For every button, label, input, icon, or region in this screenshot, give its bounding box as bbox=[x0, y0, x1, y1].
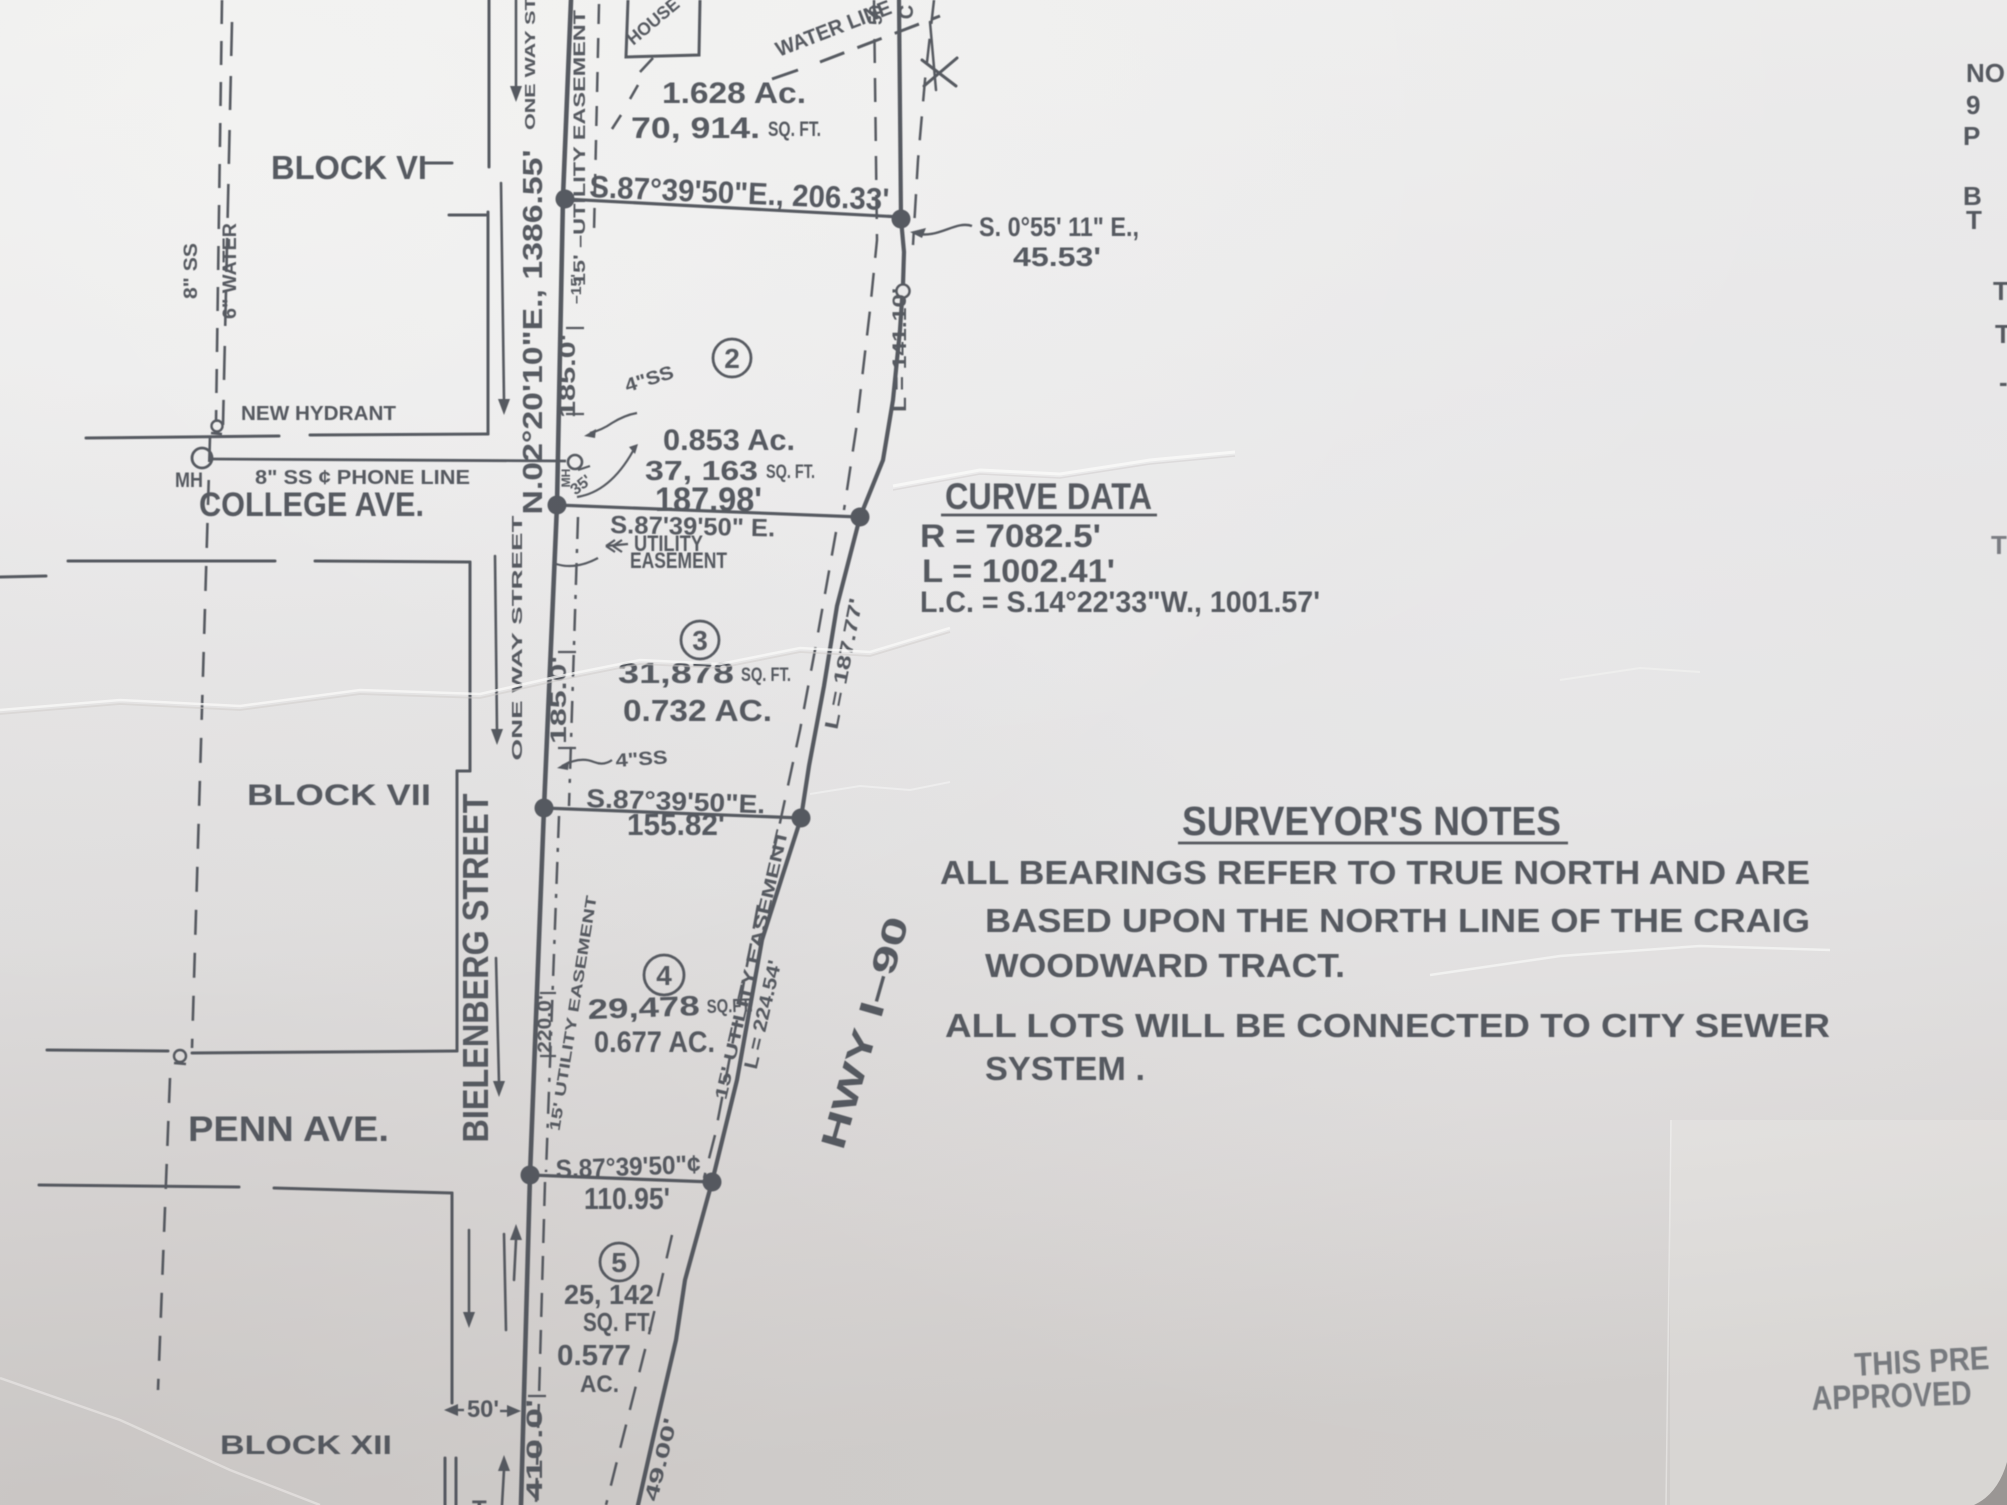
svg-text:–15': –15' bbox=[568, 274, 585, 304]
svg-text:9: 9 bbox=[1966, 90, 1980, 120]
svg-text:CURVE DATA: CURVE DATA bbox=[945, 476, 1152, 517]
svg-text:220.0': 220.0' bbox=[535, 995, 556, 1053]
svg-text:ONE WAY STREET: ONE WAY STREET bbox=[522, 0, 539, 130]
svg-text:70, 914.: 70, 914. bbox=[631, 112, 760, 145]
svg-text:NO: NO bbox=[1966, 58, 2005, 88]
svg-text:185.0': 185.0' bbox=[555, 334, 580, 418]
svg-text:ONE WAY STREET: ONE WAY STREET bbox=[509, 516, 526, 761]
svg-text:29,478: 29,478 bbox=[587, 990, 700, 1025]
svg-text:1.628 Ac.: 1.628 Ac. bbox=[662, 77, 806, 110]
svg-text:BLOCK VI: BLOCK VI bbox=[271, 149, 427, 186]
svg-text:WOODWARD TRACT.: WOODWARD TRACT. bbox=[985, 947, 1345, 984]
svg-text:SURVEYOR'S NOTES: SURVEYOR'S NOTES bbox=[1182, 798, 1561, 844]
svg-text:155.82': 155.82' bbox=[627, 807, 725, 842]
svg-text:PENN AVE.: PENN AVE. bbox=[188, 1110, 389, 1149]
svg-text:6" WATER: 6" WATER bbox=[220, 223, 241, 319]
svg-text:SQ. FT.: SQ. FT. bbox=[741, 665, 791, 686]
svg-text:NEW HYDRANT: NEW HYDRANT bbox=[241, 403, 396, 425]
svg-text:T: T bbox=[1993, 276, 2007, 306]
svg-text:COLLEGE AVE.: COLLEGE AVE. bbox=[199, 486, 424, 524]
svg-text:BLOCK VII: BLOCK VII bbox=[247, 779, 431, 812]
svg-text:S. 0°55' 11" E.,: S. 0°55' 11" E., bbox=[979, 212, 1139, 242]
svg-text:50: 50 bbox=[866, 5, 886, 25]
svg-text:25, 142: 25, 142 bbox=[564, 1279, 654, 1310]
svg-text:T: T bbox=[472, 1496, 487, 1505]
svg-text:T: T bbox=[1991, 530, 2007, 560]
svg-text:SQ. FT.: SQ. FT. bbox=[583, 1307, 653, 1337]
svg-text:T: T bbox=[1995, 319, 2007, 349]
svg-text:8" SS ¢ PHONE LINE: 8" SS ¢ PHONE LINE bbox=[255, 467, 470, 489]
svg-text:50': 50' bbox=[467, 1396, 499, 1423]
svg-text:BIELENBERG STREET: BIELENBERG STREET bbox=[455, 794, 496, 1143]
svg-text:AC.: AC. bbox=[580, 1371, 619, 1398]
svg-text:0.732 AC.: 0.732 AC. bbox=[623, 693, 772, 728]
svg-text:N.02°20'10"E., 1386.55': N.02°20'10"E., 1386.55' bbox=[517, 150, 548, 515]
svg-text:MH: MH bbox=[559, 469, 573, 488]
svg-text:L = 1002.41': L = 1002.41' bbox=[922, 553, 1115, 589]
svg-text:410.0': 410.0' bbox=[522, 1399, 547, 1501]
svg-text:45.53': 45.53' bbox=[1013, 242, 1101, 272]
svg-text:185.0': 185.0' bbox=[546, 656, 571, 744]
svg-text:0.677 AC.: 0.677 AC. bbox=[594, 1026, 715, 1059]
svg-text:8" SS: 8" SS bbox=[181, 243, 202, 299]
svg-text:0.853 Ac.: 0.853 Ac. bbox=[663, 424, 795, 457]
svg-text:SQ. FT.: SQ. FT. bbox=[768, 118, 821, 141]
svg-text:3: 3 bbox=[692, 625, 708, 656]
svg-text:BASED UPON THE NORTH LINE OF T: BASED UPON THE NORTH LINE OF THE CRAIG bbox=[985, 902, 1810, 939]
svg-text:ALL BEARINGS REFER TO TRUE NOR: ALL BEARINGS REFER TO TRUE NORTH AND ARE bbox=[940, 854, 1810, 891]
svg-text:ALL LOTS WILL BE CONNECTED TO: ALL LOTS WILL BE CONNECTED TO CITY SEWER bbox=[945, 1007, 1830, 1044]
svg-text:L.C. = S.14°22'33"W., 1001.57': L.C. = S.14°22'33"W., 1001.57' bbox=[920, 586, 1320, 619]
svg-text:EASEMENT: EASEMENT bbox=[630, 548, 727, 573]
svg-text:4: 4 bbox=[656, 960, 672, 991]
svg-text:SYSTEM .: SYSTEM . bbox=[985, 1050, 1145, 1087]
svg-text:BLOCK XII: BLOCK XII bbox=[220, 1430, 392, 1460]
svg-text:0.577: 0.577 bbox=[557, 1340, 631, 1372]
svg-text:MH: MH bbox=[175, 469, 203, 492]
svg-text:15' –UTILITY EASEMENT: 15' –UTILITY EASEMENT bbox=[570, 9, 589, 286]
svg-text:4"SS: 4"SS bbox=[615, 747, 668, 772]
svg-text:R = 7082.5': R = 7082.5' bbox=[920, 518, 1101, 554]
svg-text:SQ. FT.: SQ. FT. bbox=[766, 462, 815, 483]
svg-text:L = 141.10': L = 141.10' bbox=[890, 288, 911, 412]
svg-text:2: 2 bbox=[724, 343, 740, 374]
svg-text:5: 5 bbox=[611, 1247, 627, 1278]
svg-text:C: C bbox=[896, 5, 918, 19]
svg-text:T: T bbox=[1966, 205, 1982, 235]
svg-text:S.87°39'50"¢: S.87°39'50"¢ bbox=[555, 1149, 701, 1184]
svg-text:110.95': 110.95' bbox=[584, 1181, 670, 1216]
svg-text:-: - bbox=[1999, 367, 2007, 397]
svg-text:P: P bbox=[1963, 121, 1980, 151]
